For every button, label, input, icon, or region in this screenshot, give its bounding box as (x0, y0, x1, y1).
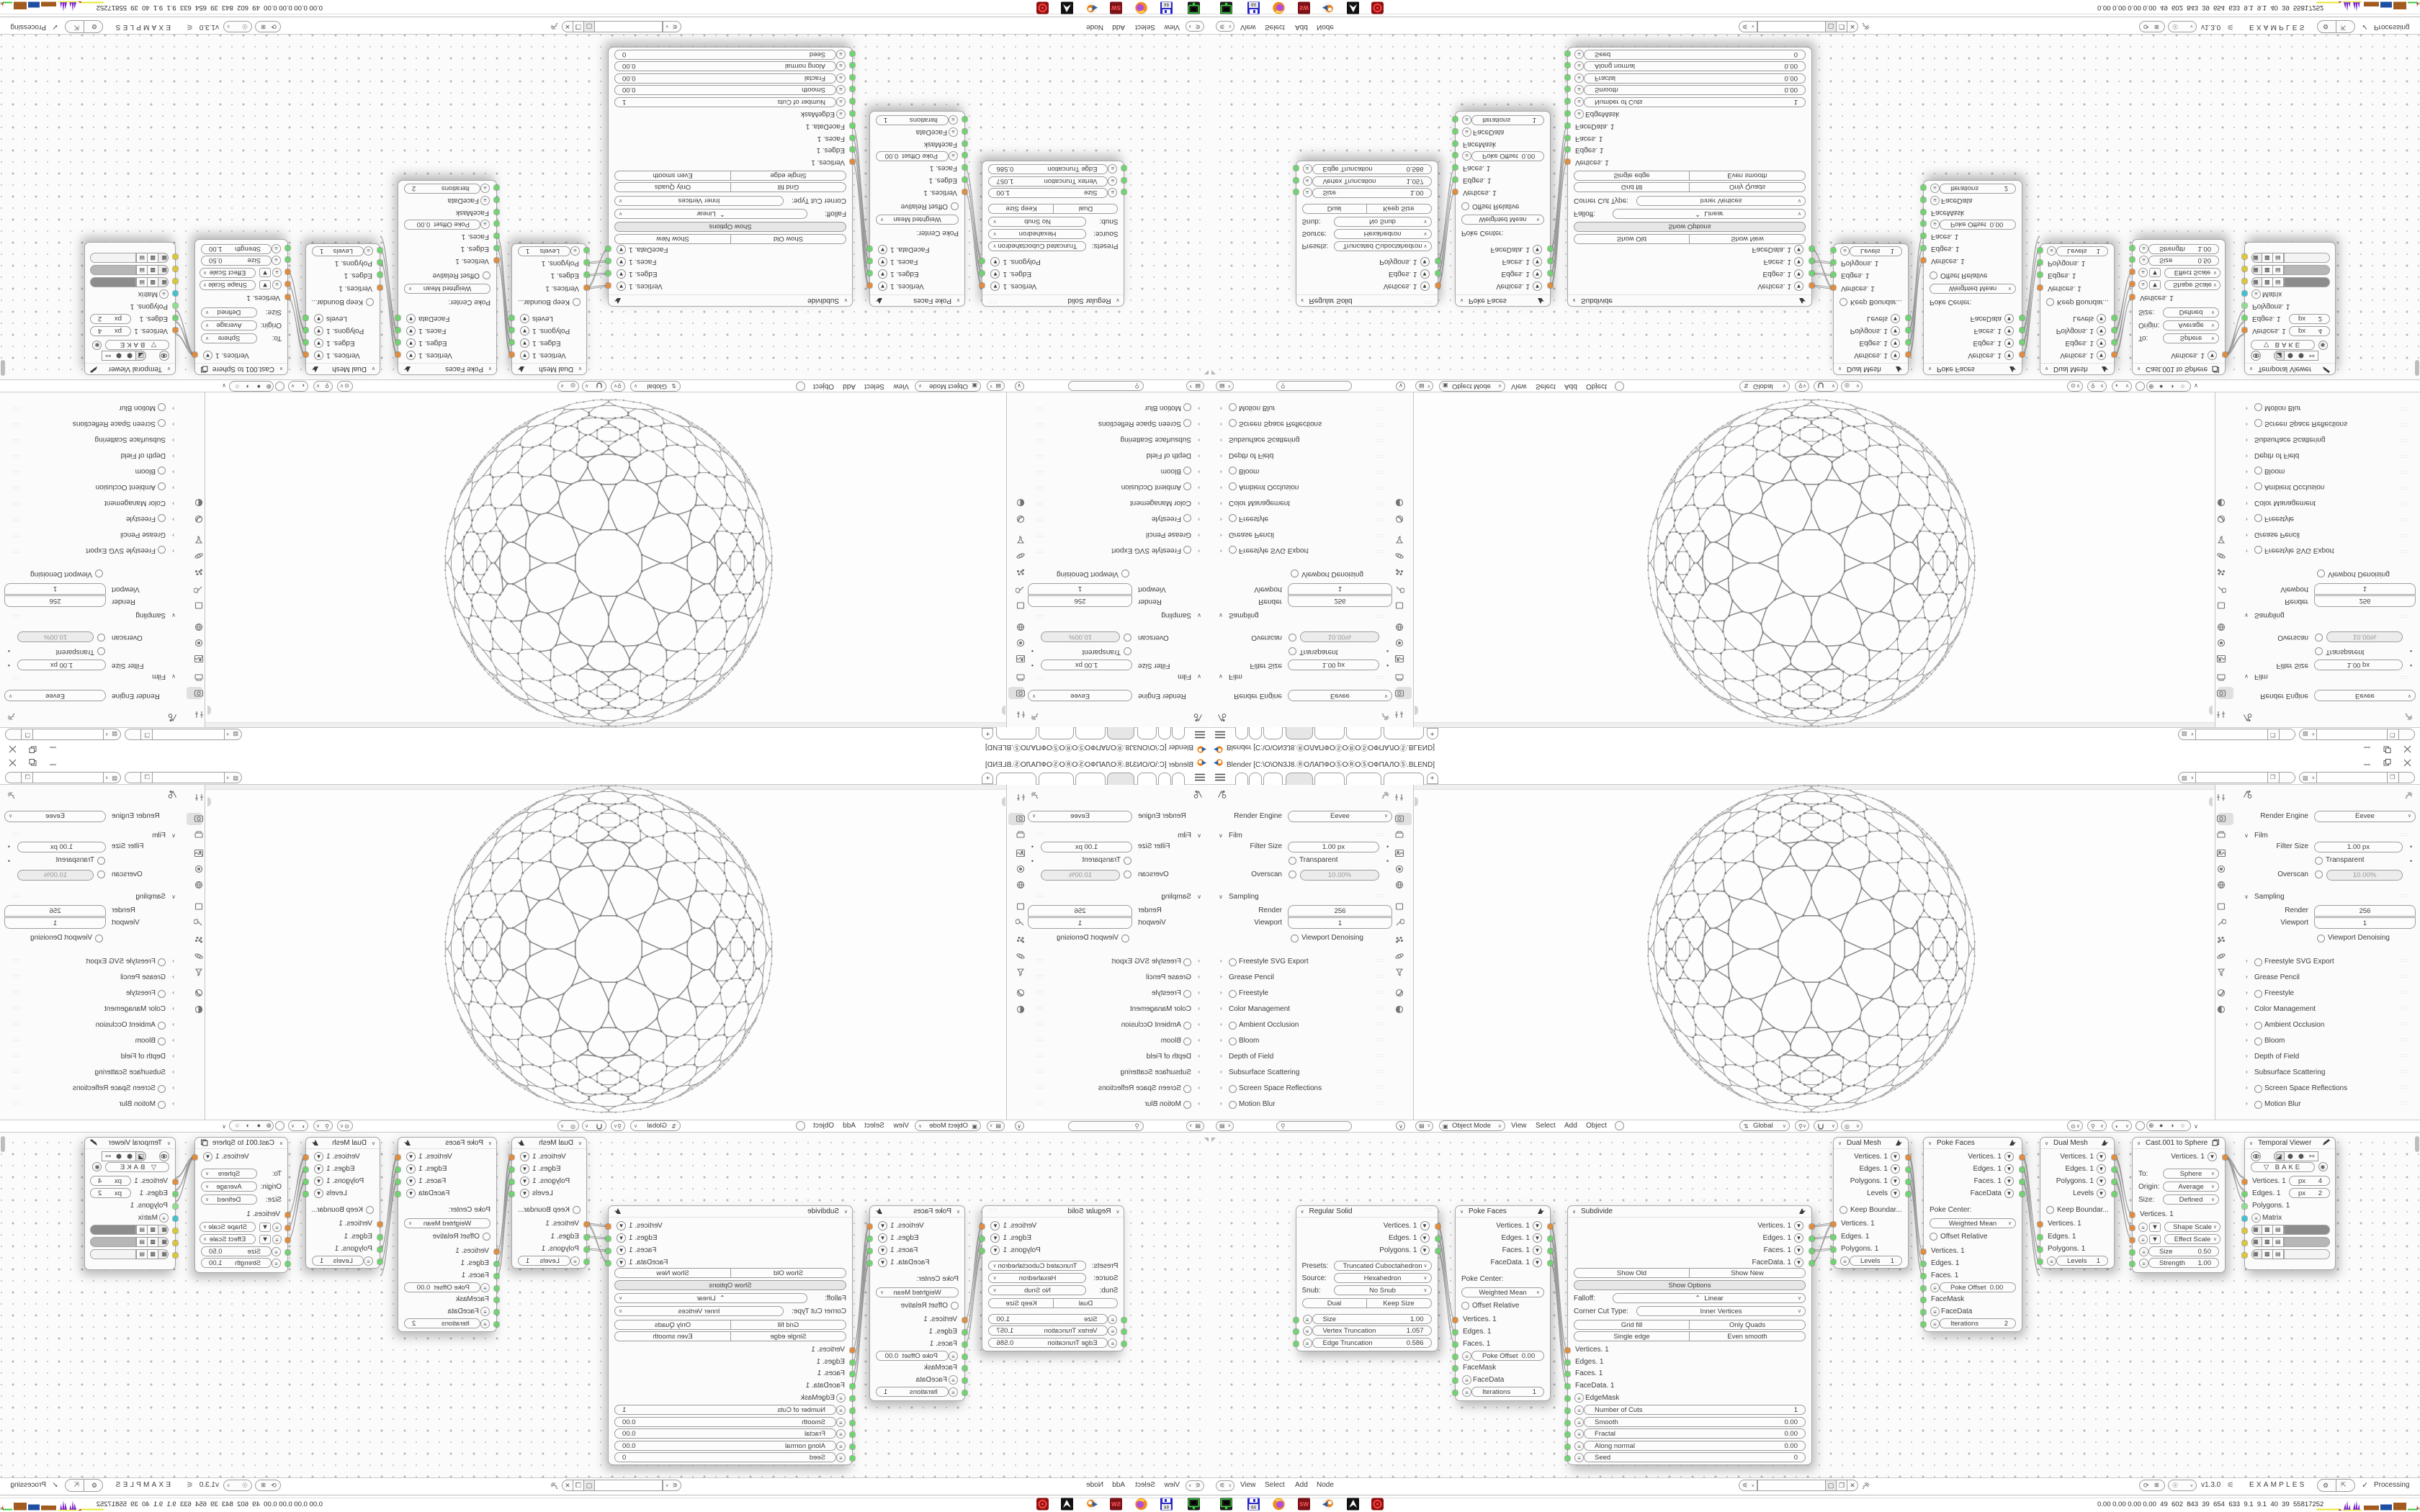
svg-text:64: 64 (1251, 2, 1256, 6)
svg-text:64: 64 (1251, 1506, 1256, 1511)
svg-text:64: 64 (1164, 2, 1169, 6)
svg-text:SW: SW (1111, 1501, 1121, 1508)
svg-text:SW: SW (1299, 1501, 1309, 1508)
svg-text:SW: SW (1111, 4, 1121, 11)
svg-text:SW: SW (1299, 4, 1309, 11)
svg-text:64: 64 (1164, 1506, 1169, 1511)
